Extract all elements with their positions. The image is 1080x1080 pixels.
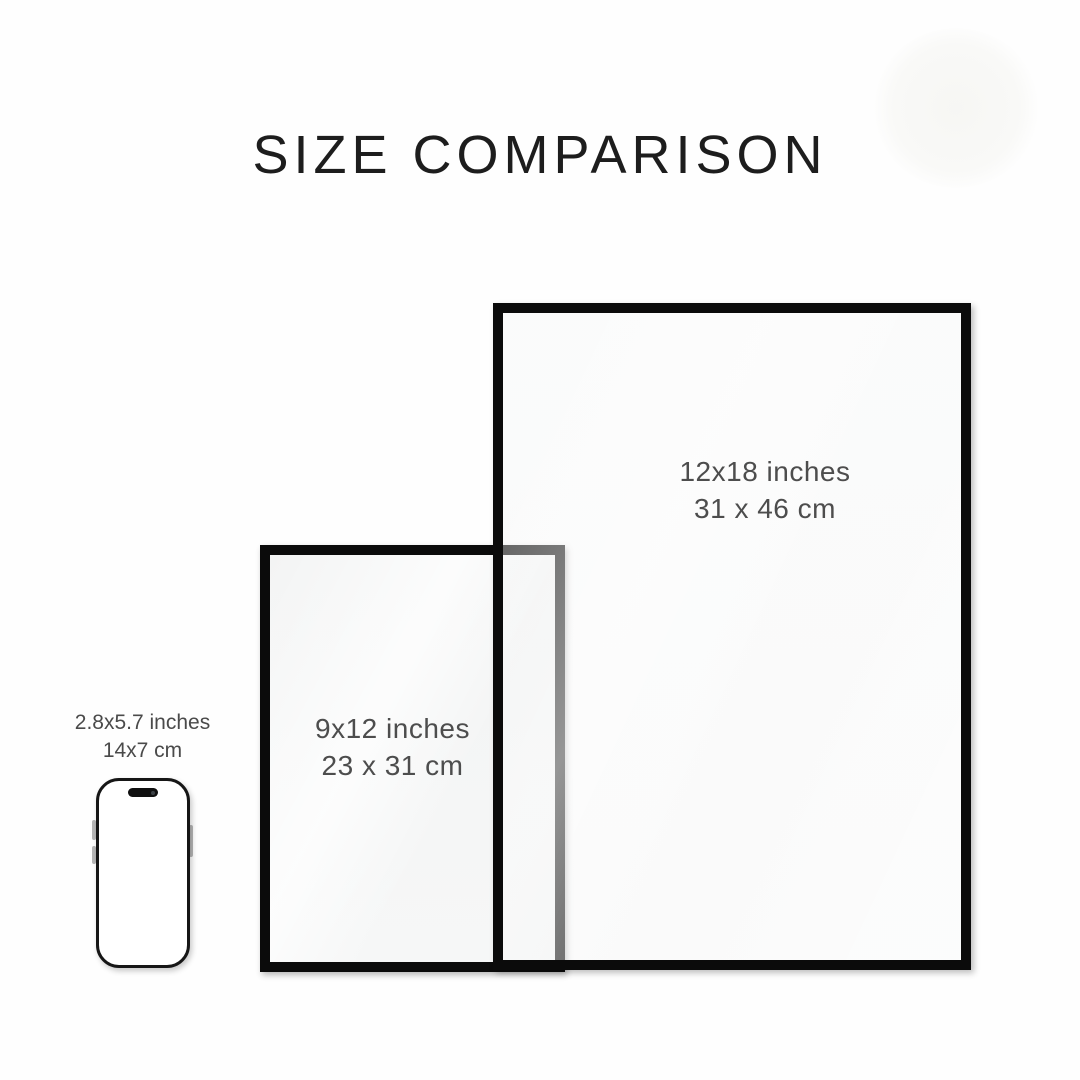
size-cm-9x12: 23 x 31 cm (270, 747, 515, 784)
page-title: SIZE COMPARISON (0, 124, 1080, 186)
size-inches-9x12: 9x12 inches (270, 710, 515, 747)
size-label-phone: 2.8x5.7 inches 14x7 cm (50, 709, 235, 765)
size-label-9x12: 9x12 inches 23 x 31 cm (270, 710, 515, 784)
poster-frame-12x18: 12x18 inches 31 x 46 cm (493, 303, 971, 970)
dynamic-island (128, 788, 158, 797)
phone-mockup (96, 778, 190, 968)
size-label-12x18: 12x18 inches 31 x 46 cm (640, 453, 890, 527)
size-cm-12x18: 31 x 46 cm (640, 490, 890, 527)
size-cm-phone: 14x7 cm (50, 737, 235, 765)
size-inches-phone: 2.8x5.7 inches (50, 709, 235, 737)
camera-icon (151, 791, 155, 795)
size-comparison-canvas: SIZE COMPARISON 9x12 inches 23 x 31 cm 1… (0, 0, 1080, 1080)
size-inches-12x18: 12x18 inches (640, 453, 890, 490)
